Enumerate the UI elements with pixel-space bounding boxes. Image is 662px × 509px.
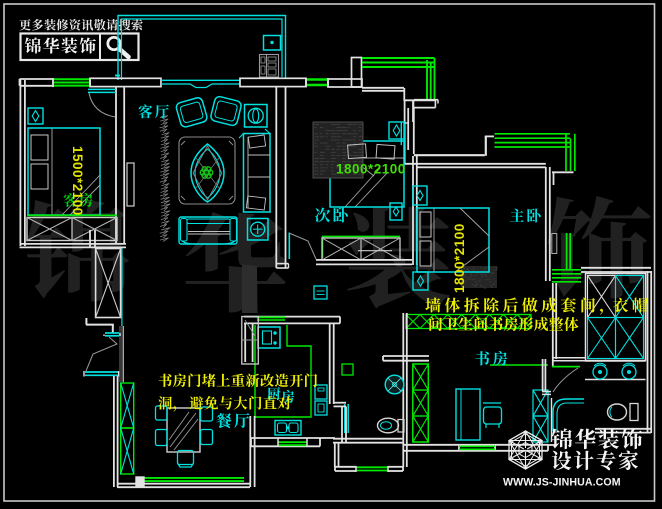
svg-text:1800*2100: 1800*2100: [336, 162, 406, 177]
svg-text:WWW.JS-JINHUA.COM: WWW.JS-JINHUA.COM: [503, 477, 621, 489]
svg-text:1500*2100: 1500*2100: [70, 146, 85, 216]
svg-text:1800*2100: 1800*2100: [452, 223, 467, 293]
